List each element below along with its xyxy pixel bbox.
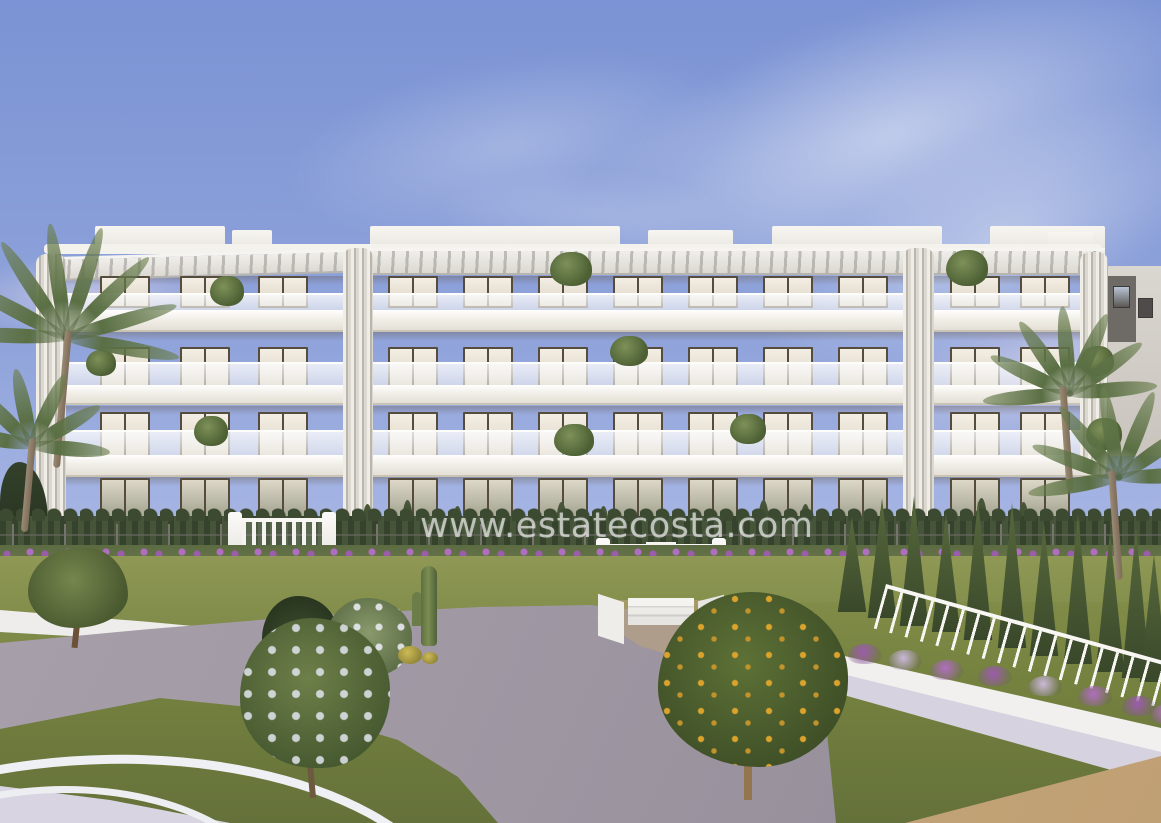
watermark: www.estatecosta.com [420, 506, 750, 546]
palm-trees [0, 0, 1161, 823]
palm-trunk [1108, 470, 1123, 580]
palm-frond [60, 329, 181, 365]
palm-trunk [1059, 386, 1073, 491]
architectural-render-photo: www.estatecosta.com [0, 0, 1161, 823]
palm-frond [28, 438, 111, 460]
palm-trunk [21, 438, 36, 532]
